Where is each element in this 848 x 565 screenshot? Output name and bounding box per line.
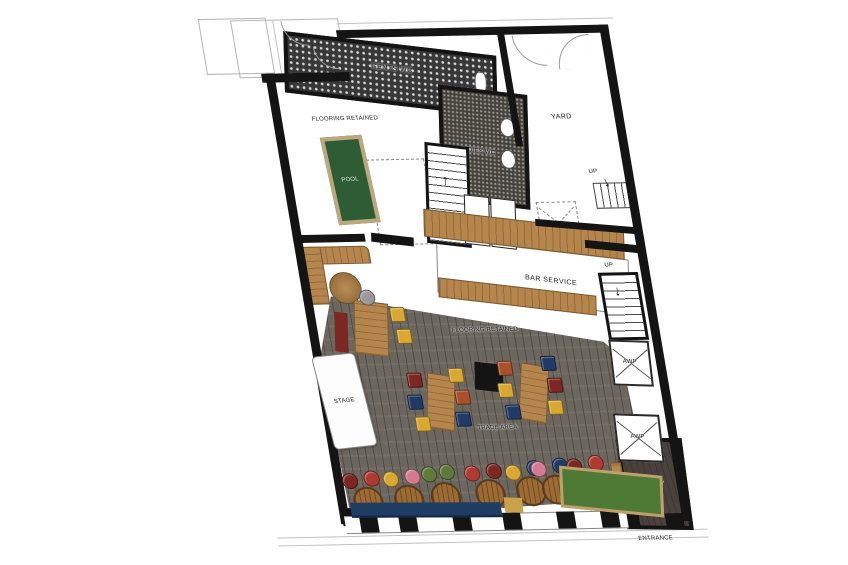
window-mullion [556,511,577,528]
wall-segment [261,72,350,83]
stool [546,378,564,393]
room-label-bar-service: BAR SERVICE [525,274,577,288]
floor-plan: FLOORING RETAINED POOL GENTS WC LADIES W… [252,25,694,531]
awp-label: AWP [630,434,645,441]
window-mullion [359,515,380,532]
stool [454,390,472,405]
room-label-trade-area: TRADE AREA [477,425,518,432]
awp-machine: AWP [608,340,654,387]
wall-segment [292,234,365,243]
stool [484,463,503,479]
door-arc [511,35,547,67]
stool [396,329,414,344]
stool [389,307,407,322]
awp-label: AWP [623,359,638,366]
banquette-maroon [334,312,348,353]
page: FLOORING RETAINED POOL GENTS WC LADIES W… [0,0,848,565]
stool [414,416,432,431]
room-label-gents: GENTS WC [371,63,413,75]
banquette-yellow [504,497,524,513]
stool [362,470,381,486]
stool [381,471,400,487]
table [353,300,389,357]
right-staircase: ↓ [598,272,649,341]
stool [341,473,360,489]
pool-table-label: POOL [341,176,360,184]
stool [497,383,515,398]
stool [407,395,425,410]
entrance-label: ENTRANCE [620,535,691,543]
wall-segment [336,25,609,39]
stool [529,461,548,477]
wall-segment [665,513,685,527]
stool [406,373,424,388]
door-arc [553,34,594,70]
banquette-blue [350,502,503,517]
up-arrow-icon: ↑ [441,172,448,187]
window-mullion [502,512,523,529]
right-stairs-up-label: UP [604,262,614,269]
stool [547,400,565,415]
toilet [500,149,516,170]
stool [540,356,558,371]
pavement-line [337,17,613,24]
stool [505,404,523,419]
down-arrow-icon: ↓ [613,283,622,297]
awp-machine: AWP [613,413,665,462]
stage-label: STAGE [333,397,355,406]
stool [447,368,465,383]
window-mullion [600,510,621,527]
stool [463,465,482,481]
table [518,362,549,424]
stool [504,464,523,480]
yard-up-label: UP [588,169,598,176]
stool [420,466,439,482]
stool [496,361,514,376]
stool [455,412,473,427]
room-label-yard: YARD [551,113,573,121]
